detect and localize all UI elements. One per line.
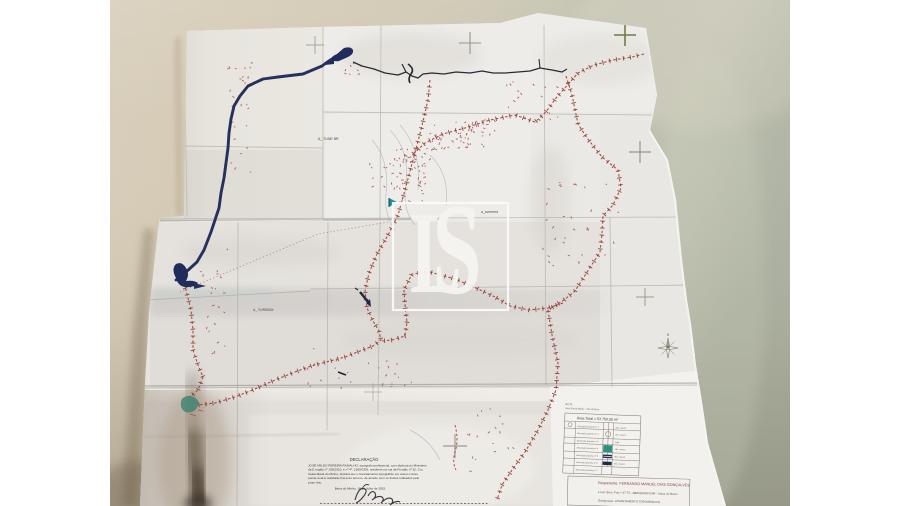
svg-text:obs. marco: obs. marco: [614, 462, 626, 465]
svg-text:obs. marco: obs. marco: [615, 448, 627, 451]
svg-text:ponde está à realidade fís: ponde está à realidade física do terreno…: [308, 476, 419, 480]
svg-text:propr ário.: propr ário.: [308, 480, 322, 484]
svg-text:L: L: [410, 190, 462, 318]
svg-text:a_svnmmd: a_svnmmd: [481, 210, 498, 214]
svg-text:A_ TUNE BR: A_ TUNE BR: [318, 137, 339, 141]
svg-text:A_ SVRBGM: A_ SVRBGM: [253, 308, 274, 312]
svg-text:N: N: [667, 333, 670, 337]
svg-text:DECLARAÇÃO: DECLARAÇÃO: [350, 457, 380, 462]
svg-text:obs. marco: obs. marco: [615, 433, 627, 436]
svg-text:NOTA: NOTA: [565, 402, 572, 406]
svg-text:obs. marco: obs. marco: [615, 426, 627, 429]
svg-text:obs. marco: obs. marco: [614, 455, 626, 458]
